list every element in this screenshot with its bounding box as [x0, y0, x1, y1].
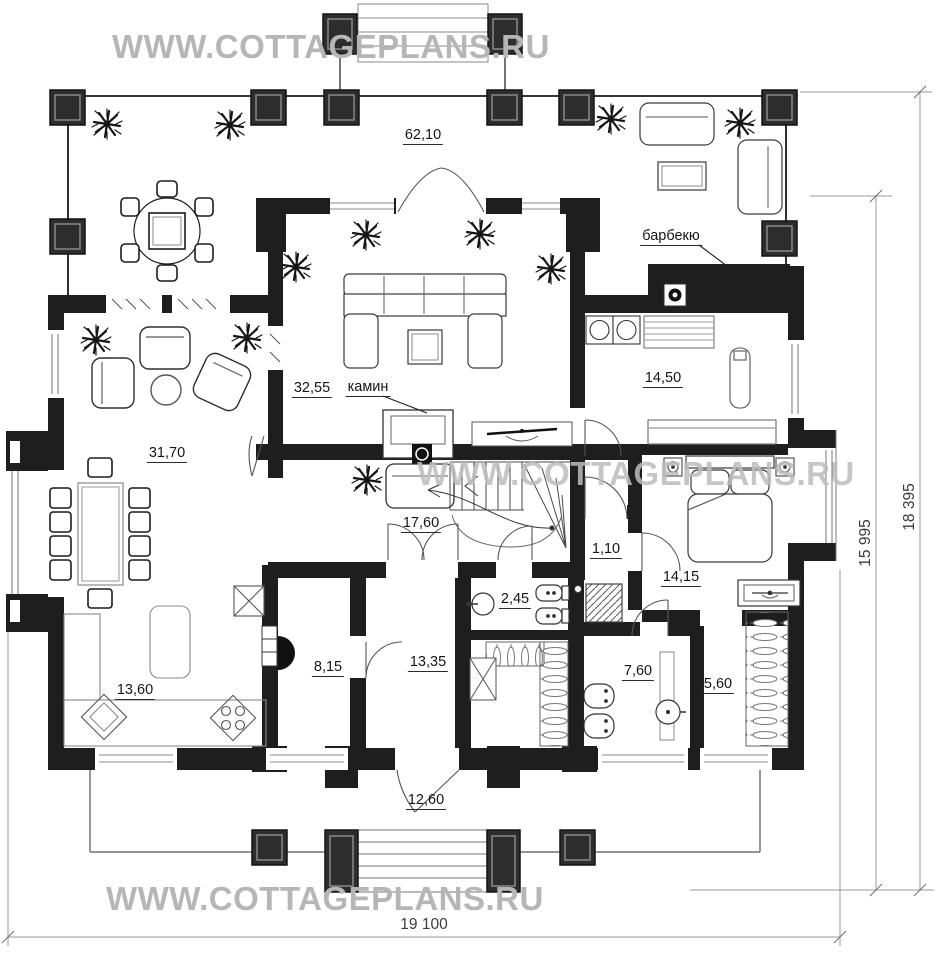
- floor-plan-page: 62,10 32,55 камин барбекю 14,50 31,70 17…: [0, 0, 940, 953]
- fireplace-label: камин: [346, 380, 391, 397]
- dimension-total-width: 19 100: [400, 916, 447, 934]
- room-area-label-wc: 2,45: [499, 592, 531, 609]
- room-area-label-living: 32,55: [292, 381, 332, 398]
- room-area-label-kitchen: 13,60: [115, 683, 155, 700]
- dimension-height-outer: 18 395: [901, 483, 919, 530]
- watermark-middle: WWW.COTTAGEPLANS.RU: [417, 457, 855, 490]
- dining-table-set: [50, 458, 150, 608]
- barbecue-label: барбекю: [640, 229, 702, 246]
- room-area-label-dining: 31,70: [147, 446, 187, 463]
- barbecue-stove: [664, 284, 686, 306]
- room-area-label-cabinet: 13,35: [408, 655, 448, 672]
- closet-hangers: [746, 612, 788, 746]
- dimension-height-inner: 15 995: [857, 519, 875, 566]
- watermark-top: WWW.COTTAGEPLANS.RU: [112, 30, 550, 63]
- room-area-label-hall: 17,60: [401, 516, 441, 533]
- tv-console: [472, 422, 572, 446]
- boiler: [262, 626, 295, 670]
- room-area-label-boiler: 8,15: [312, 660, 344, 677]
- living-sofa-group: [344, 274, 506, 368]
- sauna-furniture: [586, 316, 750, 408]
- room-area-label-sauna: 14,50: [643, 371, 683, 388]
- room-area-label-bathroom: 7,60: [622, 664, 654, 681]
- sitting-armchairs: [92, 327, 254, 414]
- kitchen-counters: [64, 586, 266, 746]
- room-area-label-terrace: 62,10: [403, 128, 443, 145]
- watermark-bottom: WWW.COTTAGEPLANS.RU: [106, 882, 544, 915]
- terrace-lounge-sofas: [640, 103, 782, 214]
- terrace-table-set: [121, 181, 213, 281]
- room-area-label-porch: 12,60: [406, 793, 446, 810]
- room-area-label-bedroom: 14,15: [661, 570, 701, 587]
- room-area-label-lobby: 1,10: [590, 542, 622, 559]
- wardrobe-hangers: [470, 642, 568, 746]
- room-area-label-wardrobe: 5,60: [702, 677, 734, 694]
